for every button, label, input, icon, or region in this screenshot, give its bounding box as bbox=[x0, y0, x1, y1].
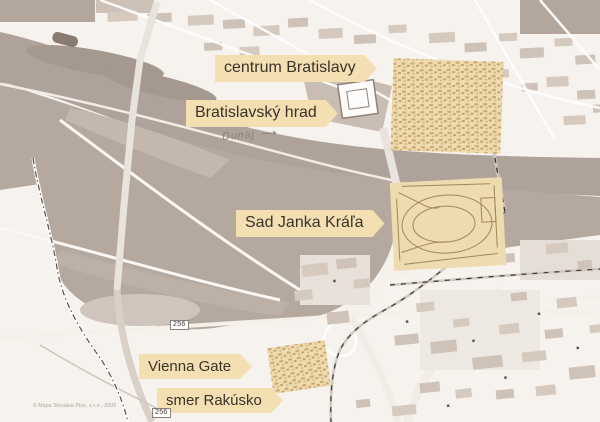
map-label-text: Sad Janka Kráľa bbox=[245, 215, 364, 231]
map-copyright: © Mapa Slovakia Plus, s.r.o., 2005 bbox=[33, 403, 116, 409]
river-name-label: Dunaj ⟶ bbox=[222, 126, 278, 143]
road-number-text: 256 bbox=[173, 321, 186, 328]
road-number-badge: 256 bbox=[152, 408, 171, 418]
map-label-sad: Sad Janka Kráľa bbox=[236, 210, 385, 237]
map-annotations: centrum Bratislavy Bratislavský hrad Sad… bbox=[0, 0, 600, 422]
map-label-vienna-gate: Vienna Gate bbox=[139, 354, 252, 379]
map-label-centrum: centrum Bratislavy bbox=[215, 55, 377, 82]
map-label-text: smer Rakúsko bbox=[166, 393, 262, 408]
map-screenshot: centrum Bratislavy Bratislavský hrad Sad… bbox=[0, 0, 600, 422]
map-label-text: Vienna Gate bbox=[148, 359, 231, 374]
road-number-text: 256 bbox=[155, 409, 168, 416]
map-label-text: centrum Bratislavy bbox=[224, 60, 356, 76]
map-label-hrad: Bratislavský hrad bbox=[186, 100, 338, 127]
map-label-text: Bratislavský hrad bbox=[195, 105, 317, 121]
map-label-smer-rakusko: smer Rakúsko bbox=[157, 388, 283, 413]
river-name-text: Dunaj bbox=[222, 128, 256, 142]
flow-direction-arrow-icon: ⟶ bbox=[260, 126, 277, 140]
road-number-badge: 256 bbox=[170, 320, 189, 330]
